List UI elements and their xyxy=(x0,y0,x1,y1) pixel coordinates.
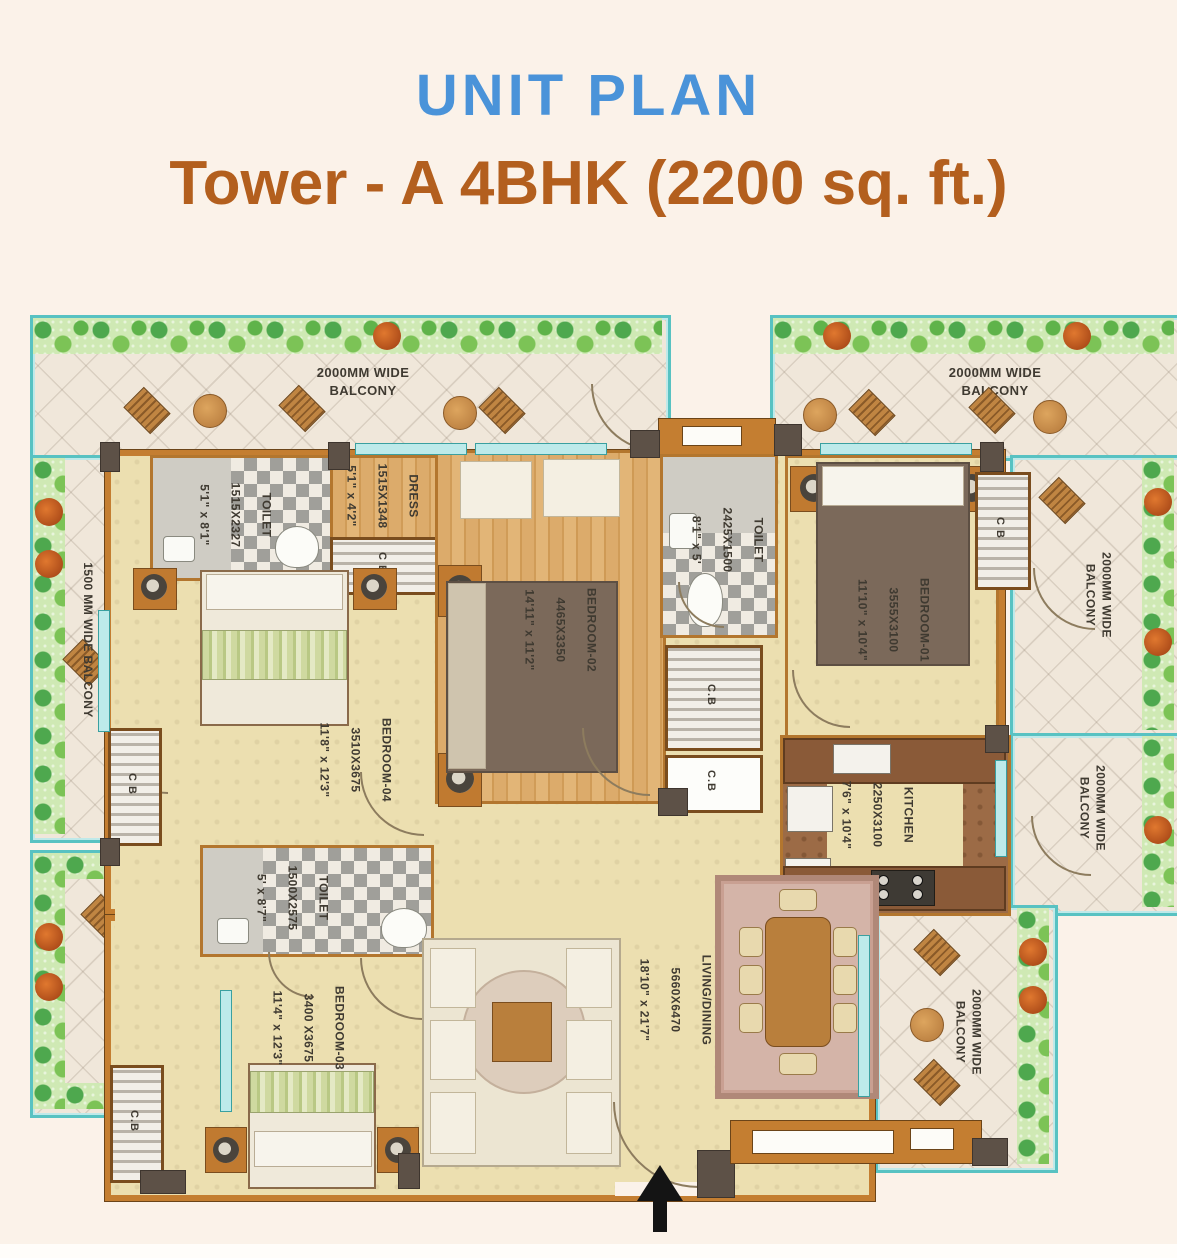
dining-chair xyxy=(739,927,763,957)
stove xyxy=(871,870,935,906)
room-label-toilet-2: TOILET 1500X2575 5' x 8'7" xyxy=(237,866,346,931)
burner xyxy=(912,889,923,900)
burner xyxy=(912,875,923,886)
round-table xyxy=(1033,400,1067,434)
plant-bush xyxy=(35,550,63,578)
lounge-chair xyxy=(1038,477,1085,524)
lounge-chair xyxy=(123,387,170,434)
room-label-bedroom-03: BEDROOM-03 3400 X3675 11'4" x 12'3" xyxy=(253,986,362,1070)
bed xyxy=(248,1063,376,1189)
balcony-label: 2000MM WIDE BALCONY xyxy=(1076,765,1107,851)
window xyxy=(220,990,232,1112)
balcony-top-right: 2000MM WIDE BALCONY xyxy=(770,315,1177,461)
sofa-seat xyxy=(566,948,612,1008)
room-label-bedroom-01: BEDROOM-01 3555X3100 11'10" x 10'4" xyxy=(838,578,947,662)
wardrobe-label: C.B xyxy=(705,770,717,792)
table-lamp xyxy=(361,574,387,600)
dining-chair xyxy=(833,927,857,957)
armchair xyxy=(543,459,620,517)
balcony-label: 2000MM WIDE BALCONY xyxy=(952,989,983,1075)
dining-chair xyxy=(739,1003,763,1033)
wall-column xyxy=(398,1153,420,1189)
kitchen-counter xyxy=(783,738,1006,784)
wall-column xyxy=(774,424,802,456)
burner xyxy=(878,875,889,886)
wall-column xyxy=(100,838,120,866)
window xyxy=(858,935,870,1097)
room-label-dress: DRESS 1515X1348 5'1" x 4'2" xyxy=(327,464,436,529)
wall-column xyxy=(658,788,688,816)
room-label-kitchen: KITCHEN 2250X3100 7'6" x 10'4" xyxy=(822,781,931,850)
sofa-seat xyxy=(566,1020,612,1080)
room-label-living-dining: LIVING/DINING 5660X6470 18'10" x 21'7" xyxy=(620,955,729,1046)
bed xyxy=(200,570,349,726)
window xyxy=(98,610,110,732)
plant-bush xyxy=(1019,938,1047,966)
bottom-margin xyxy=(0,1244,1177,1258)
bed-pillows xyxy=(448,583,486,769)
lobby-niche xyxy=(752,1130,894,1154)
wardrobe-label: C B xyxy=(126,773,138,795)
dining-chair xyxy=(779,1053,817,1075)
entrance-arrow-icon xyxy=(637,1165,683,1201)
wall-column xyxy=(972,1138,1008,1166)
bed-blanket xyxy=(202,630,347,680)
floor-plan: 2000MM WIDE BALCONY 1500 MM WIDE BALCONY… xyxy=(30,310,1177,1250)
sofa-seat xyxy=(430,948,476,1008)
page-subtitle: Tower - A 4BHK (2200 sq. ft.) xyxy=(0,148,1177,219)
unit-plan-screenshot: { "header": { "title": "UNIT PLAN", "sub… xyxy=(0,0,1177,1258)
bed-pillows xyxy=(206,574,343,610)
round-table xyxy=(193,394,227,428)
dining-chair xyxy=(779,889,817,911)
wardrobe-label: C.B xyxy=(128,1110,140,1132)
wall-column xyxy=(328,442,350,470)
dining-chair xyxy=(739,965,763,995)
plant-bush xyxy=(1144,816,1172,844)
plant-bush xyxy=(1144,488,1172,516)
round-table xyxy=(910,1008,944,1042)
window xyxy=(820,443,972,455)
lounge-chair xyxy=(478,387,525,434)
plant-bush xyxy=(823,322,851,350)
balcony-label: 1500 MM WIDE BALCONY xyxy=(79,562,95,717)
coffee-table xyxy=(492,1002,552,1062)
plant-bush xyxy=(35,923,63,951)
sofa-seat xyxy=(430,1020,476,1080)
plant-bush xyxy=(1063,322,1091,350)
wardrobe-label: C.B xyxy=(705,684,717,706)
bed-pillows xyxy=(254,1131,372,1167)
table-lamp xyxy=(141,574,167,600)
balcony-label: 2000MM WIDE BALCONY xyxy=(317,364,410,399)
plant-strip xyxy=(33,318,662,354)
wall-window xyxy=(682,426,742,446)
kitchen-sink xyxy=(833,744,891,774)
lounge-chair xyxy=(848,389,895,436)
wall-column xyxy=(100,442,120,472)
plant-bush xyxy=(373,322,401,350)
plant-bush xyxy=(1019,986,1047,1014)
lounge-chair xyxy=(913,929,960,976)
round-table xyxy=(803,398,837,432)
wall-column xyxy=(140,1170,186,1194)
dining-chair xyxy=(833,965,857,995)
wall-column xyxy=(980,442,1004,472)
balcony-label: 2000MM WIDE BALCONY xyxy=(1082,552,1113,638)
wall-column xyxy=(985,725,1009,753)
bed-blanket xyxy=(250,1071,374,1113)
page-title: UNIT PLAN xyxy=(0,62,1177,129)
window xyxy=(475,443,607,455)
room-label-bedroom-02: BEDROOM-02 4465X3350 14'11" x 11'2" xyxy=(505,588,614,672)
dining-rug xyxy=(715,875,879,1099)
window xyxy=(355,443,467,455)
sofa-seat xyxy=(430,1092,476,1154)
window xyxy=(995,760,1007,857)
bed-pillows xyxy=(822,466,964,506)
round-table xyxy=(443,396,477,430)
room-label-toilet-1: TOILET 1515X2327 5'1" x 8'1" xyxy=(180,483,289,548)
entrance-arrow-stem xyxy=(653,1200,667,1232)
dining-chair xyxy=(833,1003,857,1033)
plant-bush xyxy=(35,498,63,526)
wall-column xyxy=(630,430,660,458)
sofa-set xyxy=(422,938,621,1167)
wardrobe-label: C B xyxy=(994,517,1006,539)
sofa-seat xyxy=(566,1092,612,1154)
table-lamp xyxy=(213,1137,239,1163)
room-label-toilet-middle: TOILET 2425X1500 8'1" x 5' xyxy=(672,508,781,573)
balcony-top-left: 2000MM WIDE BALCONY xyxy=(30,315,671,461)
armchair xyxy=(460,461,532,519)
lobby-niche xyxy=(910,1128,954,1150)
plant-bush xyxy=(35,973,63,1001)
burner xyxy=(878,889,889,900)
toilet-wc xyxy=(381,908,427,948)
plant-bush xyxy=(1144,628,1172,656)
dining-table xyxy=(765,917,831,1047)
